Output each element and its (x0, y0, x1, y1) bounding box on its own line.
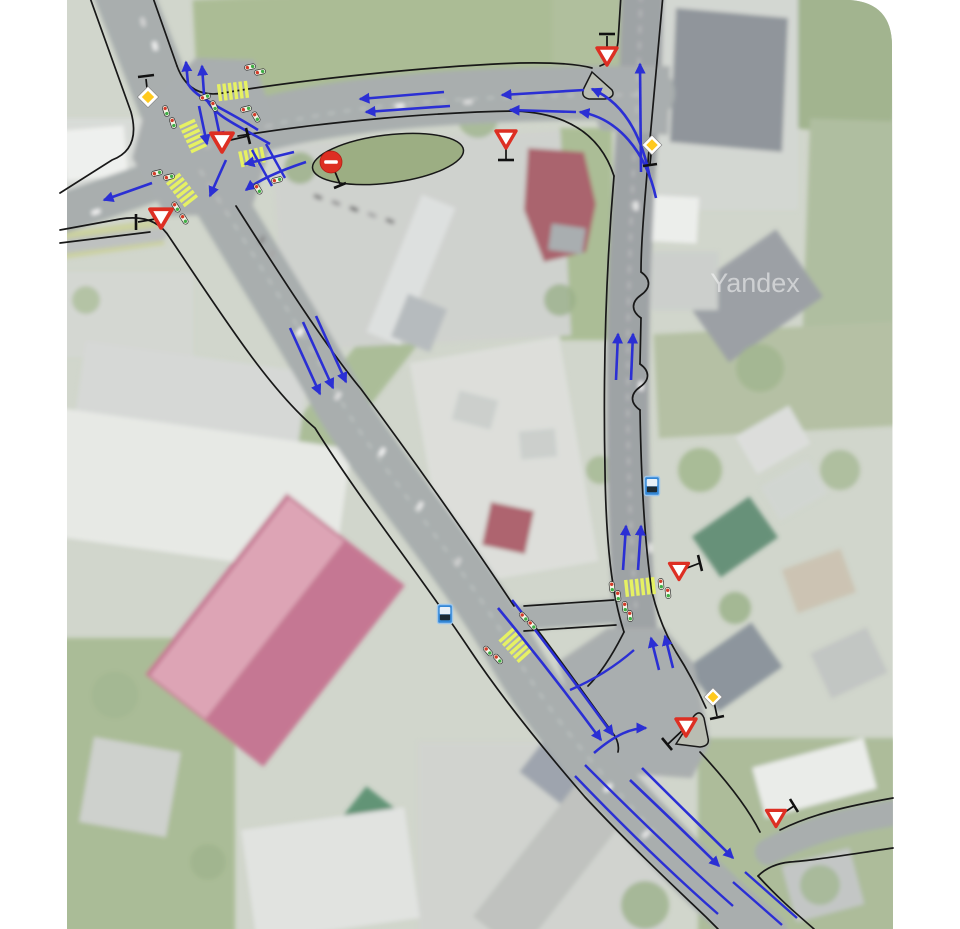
traffic-light-icon (615, 590, 621, 601)
crossing-stripe (631, 579, 633, 596)
crossing-stripe (653, 577, 655, 594)
aerial-photo: Yandex (45, 0, 908, 929)
bus-glyph-icon (440, 615, 450, 621)
traffic-light-icon (622, 601, 628, 612)
traffic-light-icon (627, 610, 633, 621)
bus-stop-sign (438, 605, 453, 624)
crossing-stripe (642, 578, 644, 595)
map-watermark: Yandex (710, 268, 800, 298)
crossing-stripe (245, 81, 247, 98)
crossing-stripe (626, 580, 628, 597)
bus-glyph-icon (647, 487, 657, 493)
road-outline (640, 318, 641, 364)
bus-stop-sign (645, 477, 660, 496)
traffic-light-icon (665, 587, 671, 598)
crossing-stripe (240, 82, 242, 99)
crossing-stripe (229, 83, 231, 100)
traffic-scheme-page: Yandex (0, 0, 960, 929)
crossing-stripe (235, 82, 237, 99)
crossing-stripe (224, 84, 226, 101)
crossing-stripe (219, 84, 221, 101)
crossing-stripe (636, 579, 638, 596)
traffic-light-icon (609, 581, 615, 592)
traffic-scheme-map: Yandex (0, 0, 960, 929)
crossing-stripe (647, 578, 649, 595)
traffic-light-icon (658, 578, 664, 589)
